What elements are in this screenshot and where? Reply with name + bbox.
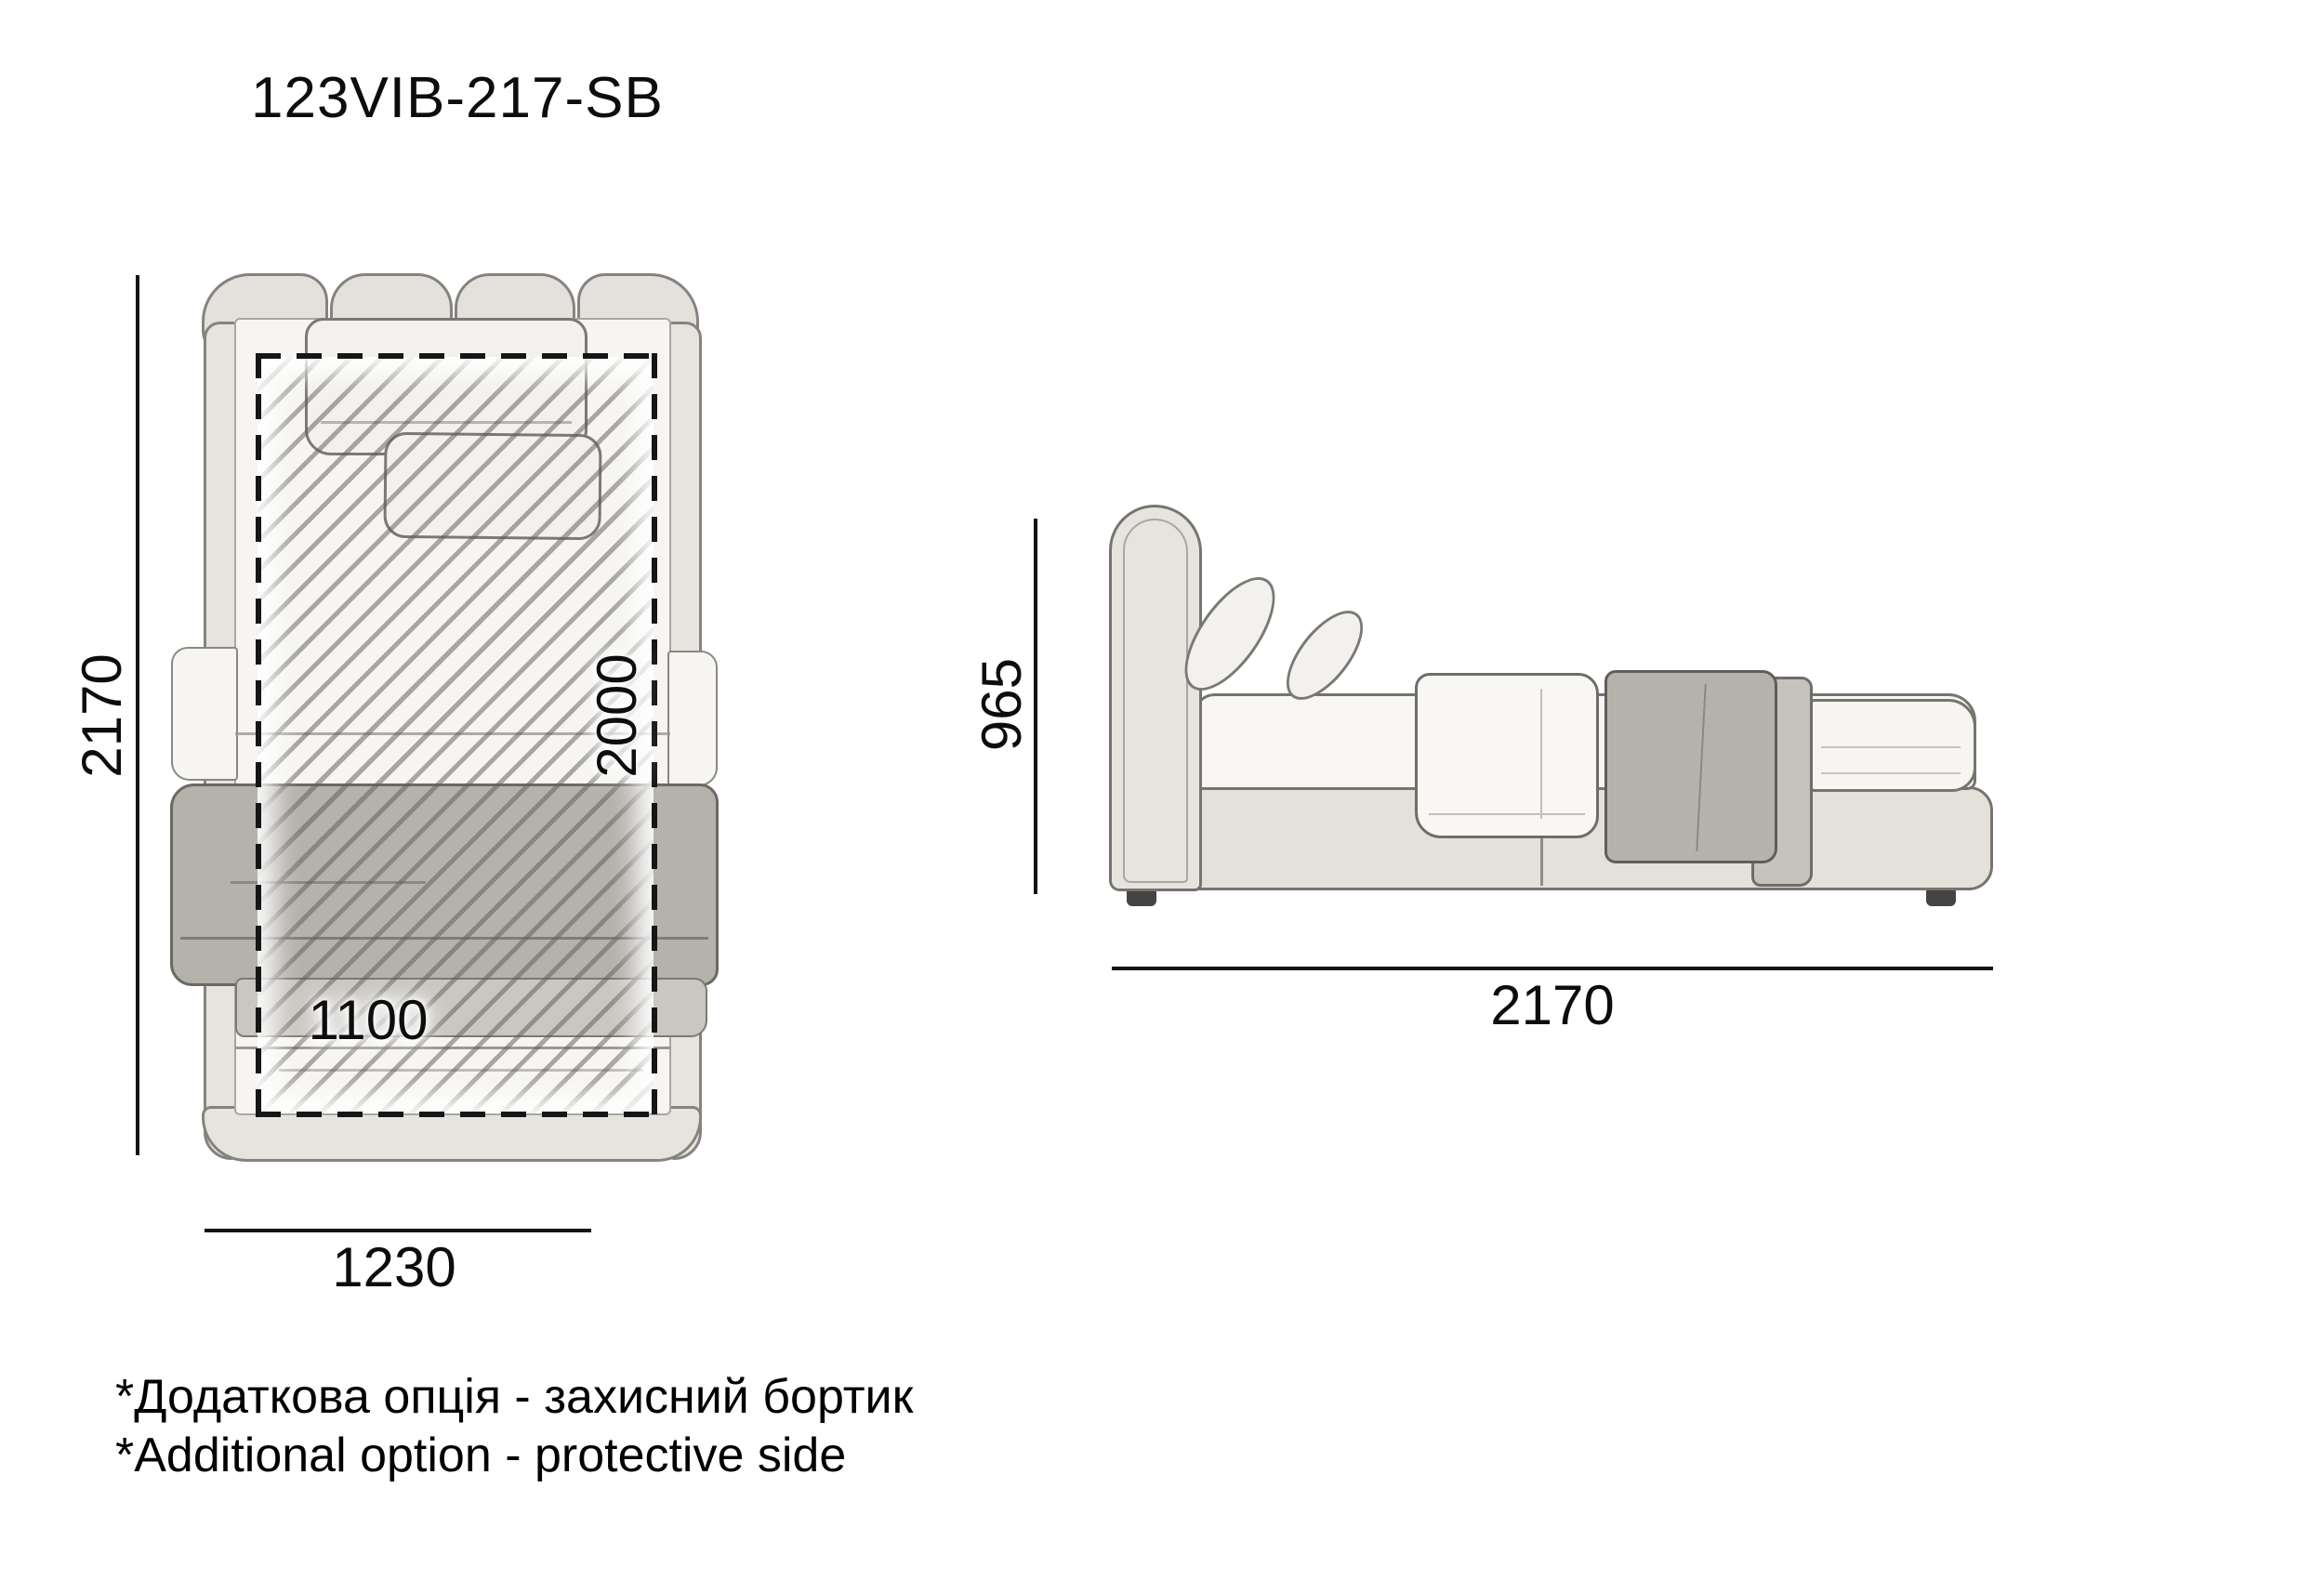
dimension-label-side-length: 2170 [1432,978,1673,1034]
foot-sheet-stack-fold-1 [1821,746,1961,748]
footnote-english: *Additional option - protective side [115,1427,913,1485]
sheet-overhang-right [667,651,718,786]
mattress-dash-right [652,353,657,1117]
dimension-line-top-view-length [136,275,139,1155]
sheet-overhang-left [171,647,238,781]
mattress-dash-bottom [256,1112,657,1117]
foot-sheet-stack [1807,699,1976,792]
white-throw-fold-h [1429,813,1585,815]
dimension-line-side-length [1112,967,1993,970]
dimension-label-side-height: 965 [974,584,1030,825]
footnote-ukrainian: *Додаткова опція - захисний бортик [115,1368,913,1427]
dimension-line-side-height [1034,519,1037,894]
dimension-label-mattress-length: 2000 [589,595,645,836]
footnotes: *Додаткова опція - захисний бортик *Addi… [115,1368,913,1486]
dimension-label-overall-length: 2170 [74,595,130,836]
headboard-side [1109,505,1202,891]
top-view [0,0,1023,1580]
white-throw-fold-v [1540,689,1542,819]
white-throw [1415,673,1599,838]
mattress-dash-top [256,353,657,359]
gray-blanket [1604,670,1777,863]
drawing-canvas: 123VIB-217-SB [0,0,2324,1580]
headboard-seam [1123,519,1188,883]
gray-blanket-fold [1696,684,1706,851]
side-view [1023,0,2324,1580]
foot-sheet-stack-fold-2 [1821,772,1961,774]
bed-foot-right [1926,889,1956,906]
dimension-line-top-view-width [205,1229,591,1232]
dimension-label-mattress-width: 1100 [247,993,489,1048]
dimension-label-overall-width: 1230 [273,1240,515,1296]
